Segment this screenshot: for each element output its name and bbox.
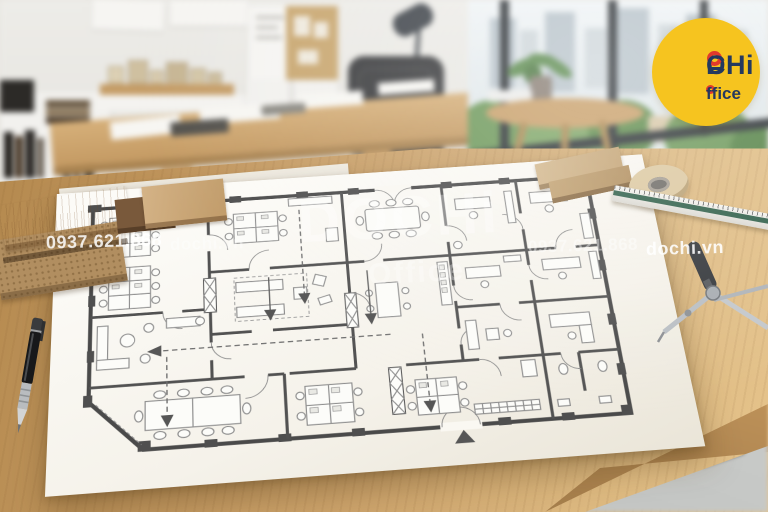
entry-marker-triangle bbox=[454, 429, 476, 444]
architect-desk-photo: 0937.621.868 dochi.vn 0937.621.868 dochi… bbox=[0, 0, 768, 512]
logo-letters-chi: CHi bbox=[706, 50, 754, 81]
central-lounge bbox=[234, 271, 333, 321]
lounge-room bbox=[96, 316, 205, 370]
cork-pinboard bbox=[286, 6, 338, 82]
watermark-phone-2: 0937.621.868 bbox=[528, 235, 638, 258]
plant-pot bbox=[530, 76, 552, 100]
dochi-office-logo: DCHi ffice bbox=[652, 18, 760, 126]
watermark-center-sub: Office bbox=[367, 253, 466, 292]
oak-wood-chip bbox=[141, 179, 227, 229]
mechanical-pencil bbox=[6, 314, 70, 462]
logo-subtitle-text: ffice bbox=[706, 84, 741, 104]
meeting-room bbox=[95, 384, 252, 448]
service-rooms bbox=[469, 354, 614, 414]
workstations-bottom bbox=[295, 375, 470, 426]
watermark-site-2: dochi.vn bbox=[646, 237, 725, 260]
watermark-phone: 0937.621.868 bbox=[46, 229, 163, 253]
dark-binder bbox=[0, 80, 34, 112]
watermark-site: dochi.vn bbox=[170, 233, 244, 255]
watermark-center-brand: DOCHi bbox=[296, 179, 501, 256]
